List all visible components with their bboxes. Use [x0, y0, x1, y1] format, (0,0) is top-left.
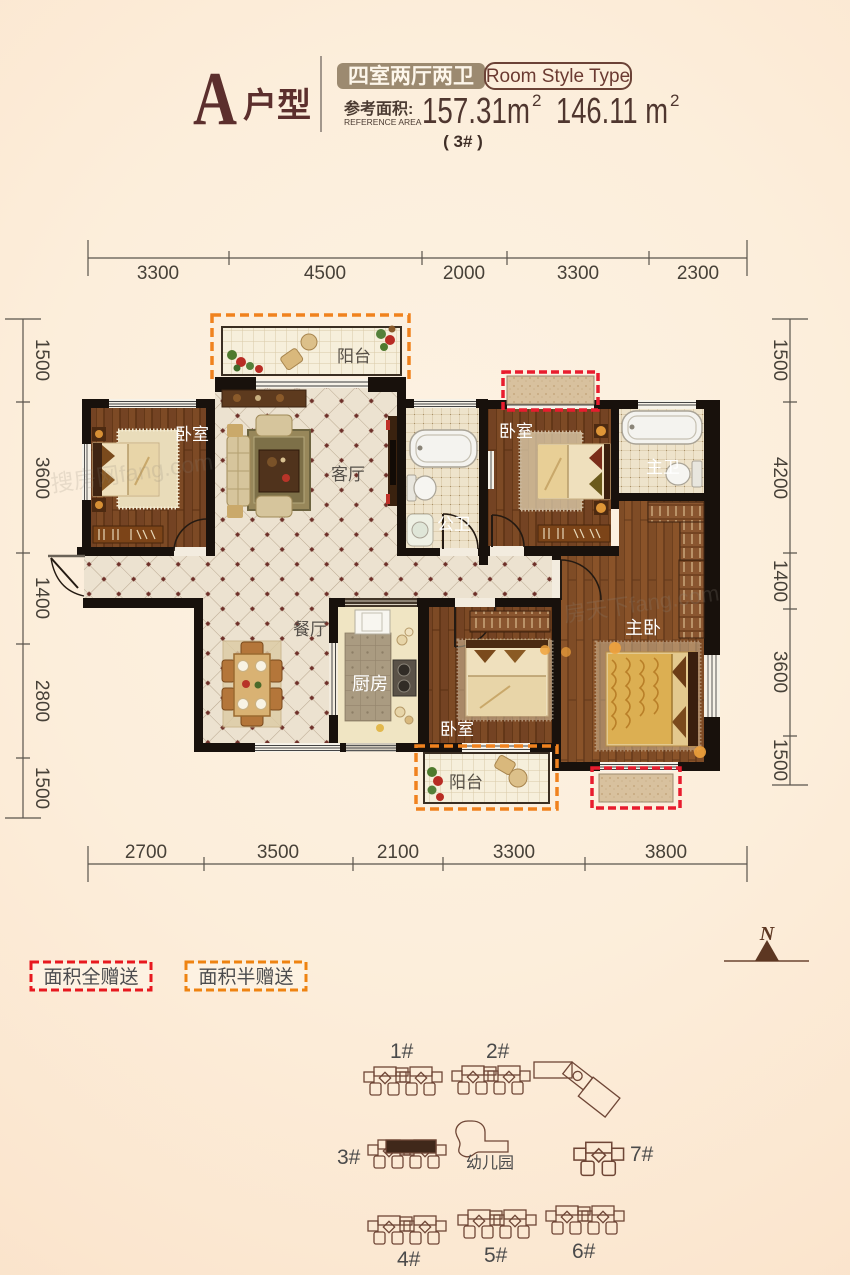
svg-text:157.31m: 157.31m [422, 90, 530, 131]
svg-text:主卫: 主卫 [646, 458, 680, 477]
svg-text:厨房: 厨房 [352, 674, 388, 694]
svg-text:REFERENCE AREA: REFERENCE AREA [344, 117, 422, 127]
svg-text:2300: 2300 [677, 263, 719, 284]
svg-text:1500: 1500 [769, 739, 790, 781]
svg-text:( 3# ): ( 3# ) [443, 132, 483, 151]
svg-text:1500: 1500 [31, 339, 52, 381]
svg-text:参考面积:: 参考面积: [344, 99, 413, 118]
svg-text:7#: 7# [630, 1143, 654, 1166]
svg-text:3#: 3# [337, 1146, 361, 1169]
svg-text:3300: 3300 [557, 263, 599, 284]
svg-text:主卧: 主卧 [625, 618, 661, 638]
svg-text:卧室: 卧室 [175, 425, 209, 444]
svg-text:3300: 3300 [137, 263, 179, 284]
svg-text:1400: 1400 [31, 577, 52, 619]
svg-text:3800: 3800 [645, 842, 687, 863]
svg-text:2000: 2000 [443, 263, 485, 284]
svg-text:2#: 2# [486, 1040, 510, 1063]
svg-text:2: 2 [670, 91, 679, 110]
svg-text:2700: 2700 [125, 842, 167, 863]
svg-text:1500: 1500 [31, 767, 52, 809]
svg-text:阳台: 阳台 [337, 347, 371, 366]
svg-text:4200: 4200 [769, 457, 790, 499]
svg-text:1500: 1500 [769, 339, 790, 381]
svg-text:餐厅: 餐厅 [293, 620, 327, 639]
svg-text:卧室: 卧室 [499, 422, 533, 441]
svg-text:4500: 4500 [304, 263, 346, 284]
svg-text:2: 2 [532, 91, 541, 110]
svg-text:公卫: 公卫 [437, 515, 471, 534]
svg-text:Room Style Type: Room Style Type [486, 66, 630, 87]
svg-text:1#: 1# [390, 1040, 414, 1063]
svg-text:幼儿园: 幼儿园 [466, 1154, 514, 1172]
svg-text:卧室: 卧室 [440, 720, 474, 739]
svg-text:面积全赠送: 面积全赠送 [43, 966, 138, 988]
svg-text:A: A [193, 57, 237, 141]
svg-text:阳台: 阳台 [449, 773, 483, 792]
svg-text:客厅: 客厅 [331, 465, 365, 484]
svg-text:146.11 m: 146.11 m [556, 90, 668, 131]
svg-text:户型: 户型 [243, 87, 311, 125]
svg-text:3600: 3600 [31, 457, 52, 499]
svg-text:6#: 6# [572, 1240, 596, 1263]
svg-text:3300: 3300 [493, 842, 535, 863]
svg-text:4#: 4# [397, 1248, 421, 1271]
svg-text:3500: 3500 [257, 842, 299, 863]
svg-text:四室两厅两卫: 四室两厅两卫 [348, 64, 474, 88]
svg-text:1400: 1400 [769, 560, 790, 602]
svg-text:N: N [759, 923, 776, 945]
svg-text:3600: 3600 [769, 651, 790, 693]
svg-text:面积半赠送: 面积半赠送 [198, 966, 293, 988]
svg-text:2800: 2800 [31, 680, 52, 722]
svg-text:2100: 2100 [377, 842, 419, 863]
svg-text:5#: 5# [484, 1244, 508, 1267]
